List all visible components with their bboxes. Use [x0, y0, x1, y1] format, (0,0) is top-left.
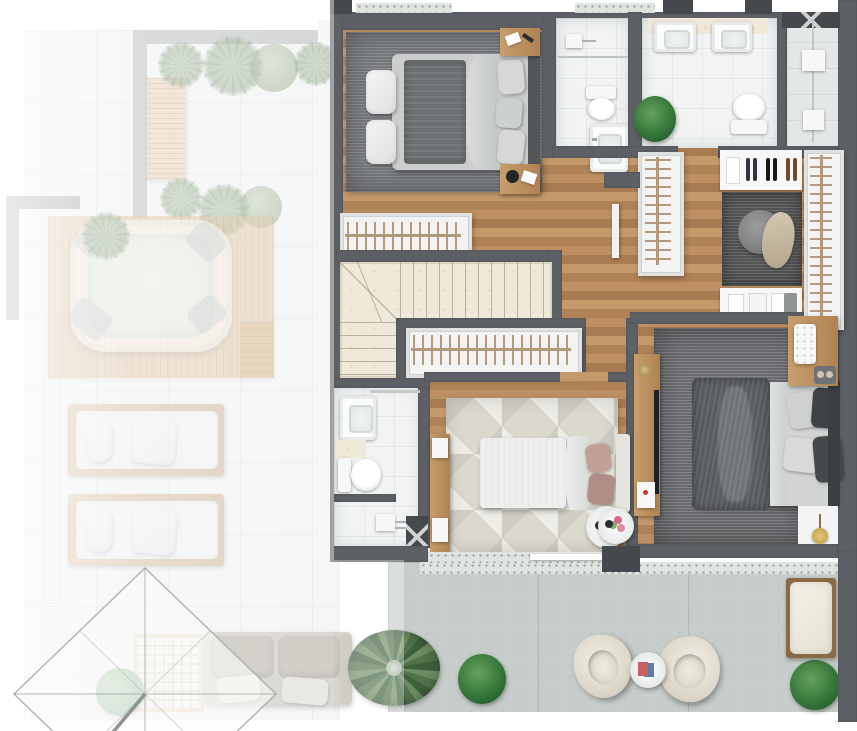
tv-panel: [654, 390, 659, 494]
switch-knobs: [817, 371, 824, 378]
pilaster: [330, 0, 352, 14]
sheet-drape: [466, 54, 498, 170]
bedroom3-door-gap: [560, 372, 608, 382]
flower-plate: [598, 508, 634, 544]
laundry-stool: [802, 50, 825, 71]
bedroom3-bed: [476, 434, 630, 512]
double-sink-right: [712, 22, 752, 52]
lower-flight-treads: [340, 322, 398, 378]
boxwood-bush-icon: [458, 654, 506, 704]
nightstand: [500, 164, 540, 194]
winder-corner: [340, 262, 400, 322]
toilet-bowl: [588, 98, 615, 120]
bench-cushion: [366, 120, 396, 164]
bedroom2-bed: [392, 52, 540, 172]
wood-console: [430, 434, 450, 554]
magazine-table: [630, 652, 666, 688]
shower-partition: [334, 494, 396, 502]
pillow: [497, 59, 526, 95]
plant-center: [386, 660, 402, 676]
lounger-pillow: [130, 504, 178, 556]
mauve-pillow: [587, 473, 616, 506]
media-console: [634, 354, 660, 516]
wardrobe-right: [804, 150, 844, 330]
round-bag-icon: [506, 170, 519, 183]
sofa-pillow: [281, 676, 329, 706]
shower-glass: [558, 56, 628, 58]
headboard: [528, 52, 540, 170]
master-nightstand: [788, 316, 838, 386]
palm-plant-icon: [82, 212, 130, 260]
hanger-rail: [411, 348, 571, 351]
shower-head-icon: [566, 34, 582, 48]
dark-blanket: [404, 60, 466, 164]
pendant-lamp-icon: [812, 528, 828, 544]
lounger-pillow: [130, 414, 178, 466]
shower-head-icon: [376, 514, 395, 531]
drying-rack-x-icon: [782, 12, 840, 28]
blanket-highlight: [718, 386, 752, 502]
shoes-brown: [786, 158, 790, 181]
vanity-sink: [340, 396, 376, 440]
daybed: [786, 578, 836, 658]
vanity-side: [336, 440, 366, 458]
stair-wall-top: [336, 250, 558, 262]
towel-bar: [370, 390, 420, 393]
lounger-head-pillow: [86, 508, 112, 552]
sun-lounger: [68, 404, 224, 476]
floor-plan-canvas: [0, 0, 857, 731]
sink-basin: [664, 30, 690, 49]
deck-step: [240, 322, 274, 378]
pilaster: [602, 546, 640, 572]
lounger-head-pillow: [86, 418, 112, 462]
bath3-wall-top: [334, 378, 430, 388]
faucet-icon: [592, 138, 597, 141]
upper-flight-treads: [400, 262, 552, 322]
mattress: [480, 438, 566, 508]
double-sink-left: [654, 22, 696, 52]
blanket-fold: [566, 436, 588, 510]
shoes-black: [766, 158, 770, 181]
top-terrazzo: [356, 3, 452, 13]
sun-lounger: [68, 494, 224, 566]
bush-plant-icon: [250, 44, 298, 92]
shoes-navy: [746, 158, 750, 181]
armchair-seat: [585, 647, 622, 687]
nightstand-decor: [505, 32, 522, 46]
shoe-shelf: [720, 150, 802, 190]
palm-plant-icon: [158, 42, 204, 88]
shoe-box: [726, 157, 740, 184]
boxwood-bush-icon: [790, 660, 840, 710]
red-dot: [643, 490, 648, 495]
exterior-ledge-v: [6, 196, 19, 320]
wall-bottom-left: [330, 546, 428, 562]
switch-panel: [814, 366, 836, 384]
palm-plant-icon: [160, 178, 202, 220]
hanger-rail: [656, 157, 659, 265]
master-bed: [692, 378, 840, 510]
nightstand-decor: [521, 170, 538, 185]
sheet-band: [770, 382, 786, 506]
hanger-rail: [345, 234, 461, 237]
wardrobe-left: [638, 152, 684, 276]
top-terrazzo: [575, 3, 655, 13]
daybed-cushion: [790, 582, 832, 654]
wall-bedroom2-bath: [542, 12, 556, 158]
toilet-bowl: [733, 94, 765, 121]
pilaster: [745, 0, 772, 14]
bench-cushion: [366, 70, 396, 114]
leafy-plant-icon: [348, 630, 440, 706]
toilet-tank: [731, 120, 767, 134]
pillow: [495, 97, 523, 129]
terrace-wall-left: [133, 30, 147, 218]
hanger-rail: [820, 155, 823, 319]
headboard: [828, 380, 840, 508]
wall-right-terrace: [838, 550, 857, 722]
slatted-bench: [146, 78, 186, 180]
wall-bath2-laundry: [777, 12, 787, 148]
open-door-leaf: [612, 204, 619, 258]
headboard: [616, 434, 630, 512]
gold-bowl-icon: [638, 364, 651, 376]
sliding-door-frame: [530, 554, 602, 560]
pillow: [496, 129, 525, 166]
bathroom-plant-icon: [634, 96, 676, 142]
flowers-icon: [614, 516, 622, 524]
console-decor: [432, 518, 448, 542]
hall-wall-stub: [604, 172, 640, 188]
magazines: [638, 662, 648, 676]
pendant-nook: [798, 506, 838, 548]
nightstand: [500, 28, 540, 56]
console-decor: [432, 438, 448, 458]
pilaster: [663, 0, 693, 14]
laundry-stool: [803, 110, 824, 130]
sink-basin: [721, 30, 747, 49]
toilet-bowl: [351, 459, 381, 491]
hairbrush-icon: [522, 33, 534, 43]
console-decor: [637, 482, 655, 508]
coat-rack-lower: [406, 328, 582, 378]
master-wall-top: [630, 312, 804, 324]
foot-bench: [366, 70, 396, 164]
mauve-pillow: [584, 442, 612, 473]
sink-basin: [349, 405, 373, 433]
master-wall-bottom: [630, 544, 838, 558]
sofa-back-cushion: [278, 636, 340, 678]
armchair-seat: [671, 652, 708, 691]
cup-icon: [605, 520, 613, 528]
shower-arm: [582, 40, 596, 42]
cantilever-umbrella: [10, 566, 280, 731]
tufted-cabinet: [794, 324, 816, 364]
toilet-tank: [338, 458, 351, 492]
